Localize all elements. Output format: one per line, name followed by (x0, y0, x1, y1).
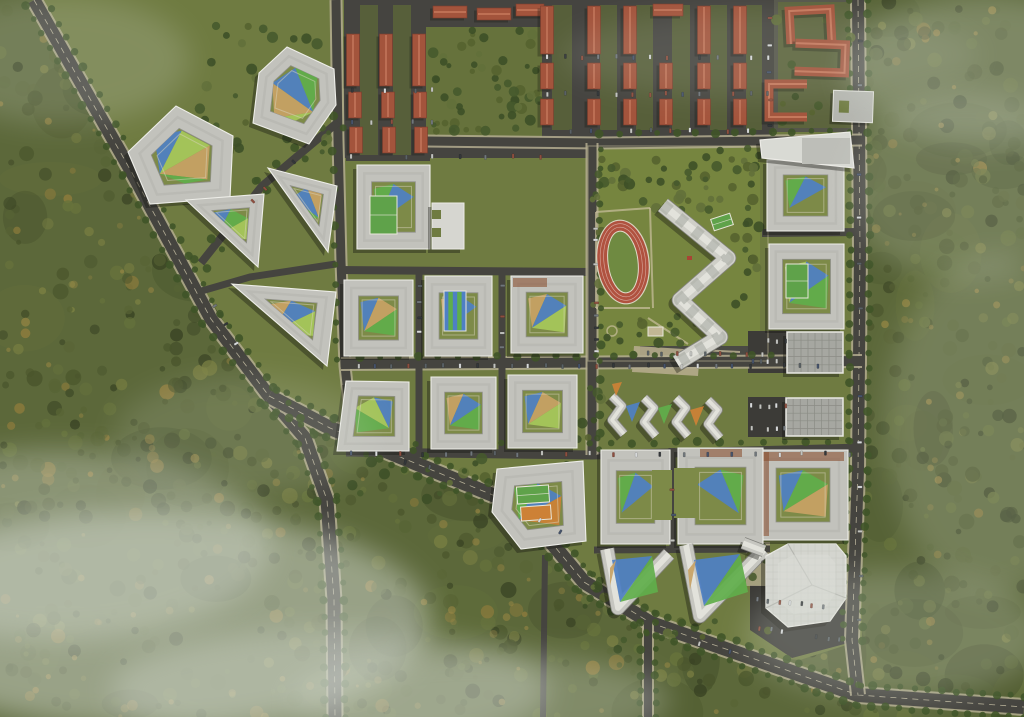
parked-car (783, 363, 785, 368)
parked-car (425, 364, 427, 369)
parked-car (442, 363, 444, 368)
parked-car (615, 93, 617, 98)
townhouse-row (430, 6, 467, 21)
parked-car (539, 155, 541, 160)
parked-car (704, 352, 706, 357)
parking-garage (783, 332, 843, 377)
parked-car (414, 89, 416, 94)
parked-car (755, 452, 757, 457)
parked-car (857, 441, 862, 443)
townhouse-row (377, 34, 393, 89)
parked-car (431, 87, 433, 92)
parked-car (593, 239, 598, 241)
parked-car (374, 364, 376, 369)
parked-car (597, 91, 599, 96)
parked-car (459, 154, 461, 159)
parked-car (751, 426, 753, 431)
parked-car (756, 597, 759, 602)
townhouse-row (695, 99, 711, 128)
parked-car (431, 120, 433, 125)
parked-car (697, 364, 699, 369)
east-block-r1 (763, 160, 844, 235)
parked-car (785, 339, 787, 344)
parked-car (594, 302, 599, 304)
center-block-6 (504, 375, 577, 452)
parked-car (746, 352, 748, 357)
parked-car (594, 338, 599, 340)
parked-car (689, 128, 691, 133)
parked-car (399, 451, 401, 456)
parked-car (421, 452, 423, 457)
parked-car (561, 364, 563, 369)
parked-car (500, 346, 505, 348)
center-block-5 (427, 377, 496, 453)
parked-car (647, 351, 649, 356)
parked-car (858, 395, 863, 397)
parked-car (511, 364, 513, 369)
white-c-building (428, 203, 464, 253)
parked-car (776, 359, 778, 364)
parked-car (776, 426, 778, 431)
parked-car (635, 452, 637, 457)
parked-car (570, 129, 572, 134)
parked-car (546, 92, 548, 97)
parked-car (405, 155, 407, 160)
green-sport-court (786, 264, 808, 298)
parked-car (593, 228, 598, 230)
south-cblock-2 (674, 448, 763, 548)
townhouse-row (474, 8, 511, 23)
parked-car (767, 427, 769, 432)
stripes-sport-court (444, 291, 466, 331)
vertical-street-x672 (672, 448, 673, 548)
parked-car (500, 315, 505, 317)
townhouse-row (411, 92, 427, 121)
parked-car (500, 332, 505, 334)
parked-car (384, 88, 386, 93)
parked-car (779, 453, 781, 458)
parked-car (776, 339, 778, 344)
parked-car (370, 120, 372, 125)
parked-car (731, 364, 733, 369)
parked-car (445, 452, 447, 457)
parked-car (351, 120, 353, 125)
parked-car (630, 128, 632, 133)
parked-car (858, 530, 863, 532)
parked-car (375, 451, 377, 456)
parking-garage (782, 398, 843, 440)
parked-car (660, 352, 662, 357)
parked-car (412, 119, 414, 124)
parked-car (595, 364, 597, 369)
parked-car (669, 128, 671, 133)
townhouse-row (657, 99, 673, 128)
parked-car (470, 451, 472, 456)
beige-sport-court (648, 327, 663, 336)
parked-car (768, 405, 770, 410)
townhouse-row (585, 99, 601, 128)
parked-car (759, 404, 761, 409)
parked-car (817, 364, 819, 369)
parked-car (390, 364, 392, 369)
townhouse-row (731, 99, 747, 128)
center-block-3 (507, 276, 583, 357)
parked-car (431, 154, 433, 159)
parked-car (719, 351, 721, 356)
parked-car (594, 327, 599, 329)
parked-car (747, 128, 749, 133)
parked-car (785, 404, 787, 409)
parked-car (593, 263, 598, 265)
parked-car (589, 451, 591, 456)
south-vblock-2-bar (739, 543, 764, 555)
parked-car (670, 489, 675, 491)
block-s1 (353, 165, 430, 253)
east-block-r2 (765, 244, 844, 333)
parked-car (752, 359, 754, 364)
center-block-2 (421, 276, 492, 360)
parked-car (750, 403, 752, 408)
townhouse-row (538, 99, 554, 128)
parked-car (783, 426, 785, 431)
parked-car (670, 539, 675, 541)
parked-car (350, 154, 352, 159)
south-cblock-1 (597, 450, 672, 548)
parked-car (671, 514, 676, 516)
parked-car (858, 307, 863, 309)
parked-car (676, 351, 678, 356)
parked-car (527, 364, 529, 369)
center-block-1 (340, 280, 413, 360)
parked-car (760, 359, 762, 364)
townhouse-row (412, 127, 428, 156)
townhouse-row (410, 34, 426, 89)
orange-sport-court (521, 505, 552, 521)
parked-car (594, 350, 599, 352)
parked-car (767, 359, 769, 364)
green-sport-court (370, 196, 397, 234)
parked-car (749, 364, 751, 369)
parked-car (650, 128, 652, 133)
parked-car (545, 363, 547, 368)
townhouse-row (621, 99, 637, 128)
parked-car (647, 363, 649, 368)
townhouse-row (344, 34, 360, 89)
parked-car (631, 92, 633, 97)
parked-car (418, 285, 423, 287)
parked-car (715, 364, 717, 369)
parked-car (541, 451, 543, 456)
parked-car (564, 91, 566, 96)
masterplan-svg (0, 0, 1024, 717)
parked-car (459, 364, 461, 369)
parked-car (612, 452, 614, 457)
parked-car (768, 124, 773, 126)
townhouse-row (380, 127, 396, 156)
townhouse-row (347, 127, 363, 156)
parked-car (767, 338, 769, 343)
parked-car (493, 364, 495, 369)
green-sport-court (516, 485, 549, 504)
parked-car (731, 452, 733, 457)
parked-car (418, 317, 423, 319)
parked-car (849, 452, 851, 457)
parked-car (417, 331, 422, 333)
parked-car (681, 364, 683, 369)
parked-car (775, 403, 777, 408)
townhouse-row (538, 6, 554, 57)
parked-car (358, 364, 360, 369)
parked-car (649, 93, 651, 98)
parked-car (565, 452, 567, 457)
parked-car (546, 55, 548, 60)
horizontal-street-y270 (338, 270, 592, 272)
parked-car (801, 451, 803, 456)
parked-car (683, 452, 685, 457)
parked-car (690, 351, 692, 356)
masterplan-aerial-view (0, 0, 1024, 717)
parked-car (727, 129, 729, 134)
parked-car (407, 364, 409, 369)
parked-car (612, 363, 614, 368)
parked-car (707, 452, 709, 457)
parked-car (351, 88, 353, 93)
east-block-r3 (754, 450, 848, 544)
parked-car (417, 301, 422, 303)
parked-car (516, 453, 518, 458)
parked-car (590, 128, 592, 133)
parked-car (512, 154, 514, 159)
parked-car (659, 452, 661, 457)
parked-car (663, 364, 665, 369)
parked-car (594, 314, 599, 316)
parked-car (578, 364, 580, 369)
parked-car (476, 363, 478, 368)
townhouse-row (346, 92, 362, 121)
parked-car (628, 364, 630, 369)
parked-car (391, 119, 393, 124)
townhouse-row (538, 63, 554, 92)
townhouse-row (379, 92, 395, 121)
parked-car (494, 451, 496, 456)
parked-car (857, 263, 862, 265)
parked-car (761, 352, 763, 357)
parked-car (824, 451, 826, 456)
parked-car (484, 155, 486, 160)
parked-car (858, 486, 863, 488)
parked-car (500, 285, 505, 287)
parked-car (799, 363, 801, 368)
